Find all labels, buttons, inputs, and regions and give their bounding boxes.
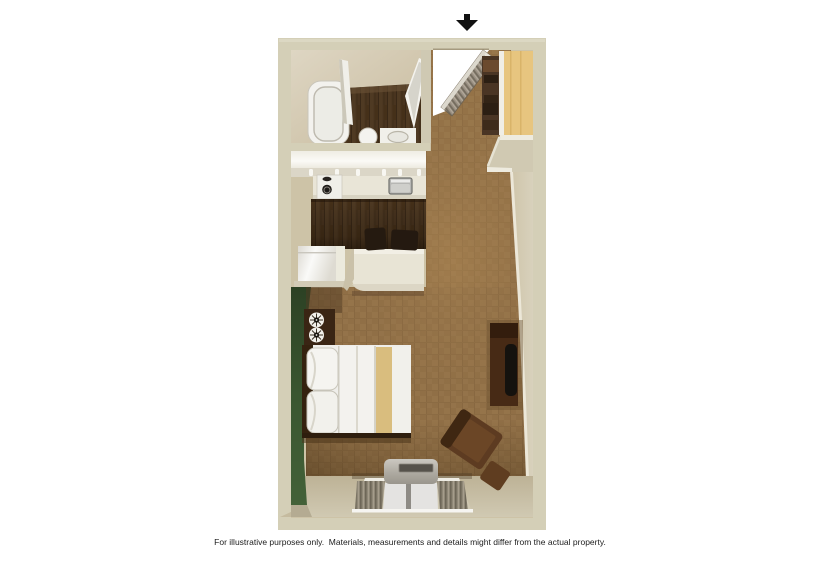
svg-text:For illustrative purposes only: For illustrative purposes only. Material…: [214, 537, 606, 547]
